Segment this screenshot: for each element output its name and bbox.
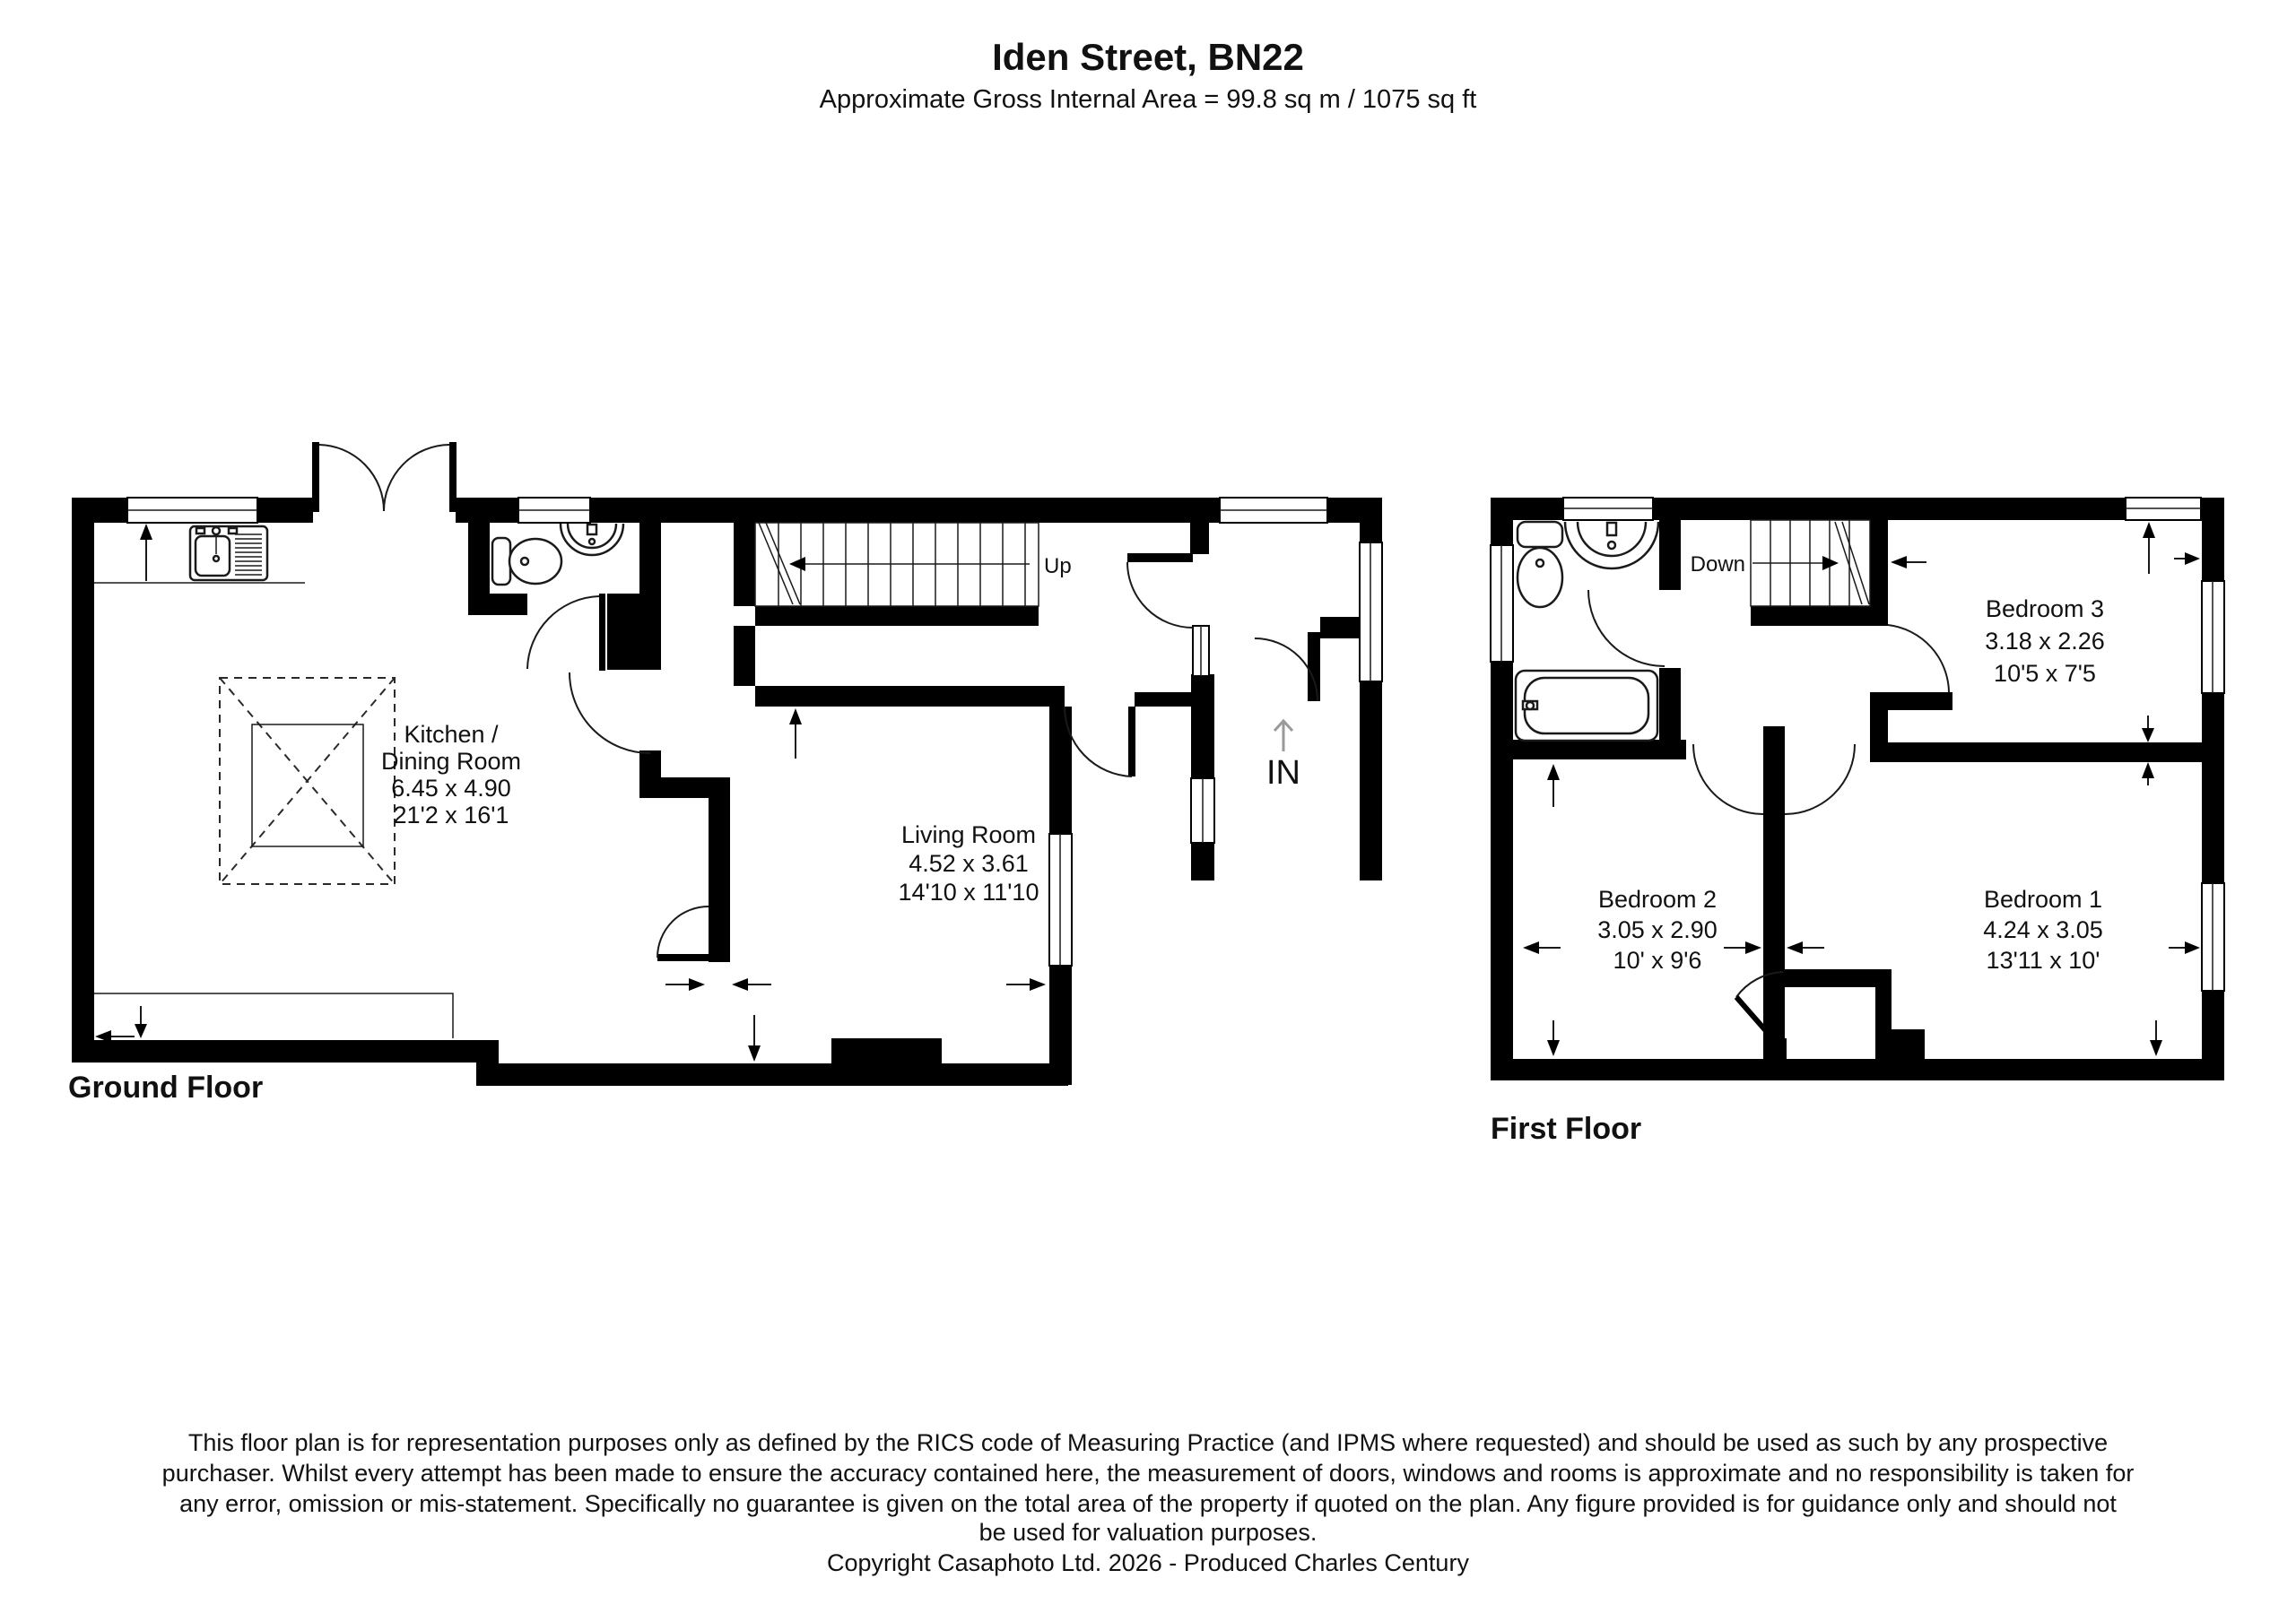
header: Iden Street, BN22 Approximate Gross Inte… (820, 36, 1477, 114)
entrance-marker: IN (1266, 721, 1300, 792)
stairs-up-label: Up (1044, 554, 1072, 578)
room-dims-imperial: 14'10 x 11'10 (899, 879, 1039, 906)
hall-vestibule-door-arc (1127, 562, 1193, 628)
copyright-line: Copyright Casaphoto Ltd. 2026 - Produced… (827, 1549, 1469, 1576)
tap-icon (213, 527, 220, 534)
stair-arrow-head (1822, 556, 1839, 570)
room-dims-imperial: 10' x 9'6 (1613, 947, 1702, 974)
measure-arrow-up (2143, 522, 2155, 574)
measure-arrow-left (1523, 941, 1561, 954)
measure-arrow-up (789, 708, 802, 759)
toilet-icon (1518, 548, 1562, 607)
kitchen-living-door-arc (657, 906, 709, 958)
hall-living-door-arc (1065, 707, 1132, 776)
window (1191, 778, 1214, 843)
measure-arrow-right (2169, 941, 2200, 954)
measure-arrow-up (2142, 762, 2154, 785)
room-dims-metric: 3.18 x 2.26 (1985, 628, 2105, 655)
tap-icon (1607, 523, 1616, 535)
measure-arrow-left (1787, 941, 1824, 954)
wc-fixtures (492, 524, 623, 585)
window (2126, 498, 2201, 520)
page-title: Iden Street, BN22 (992, 36, 1304, 78)
hall-living-door-leaf (1128, 707, 1135, 776)
double-door-right-leaf (449, 442, 457, 512)
window (1049, 834, 1072, 966)
tap-icon (587, 525, 596, 534)
ground-floor-plan: Up (68, 442, 1382, 1105)
disclaimer-line: purchaser. Whilst every attempt has been… (162, 1460, 2135, 1487)
entrance-arrow-icon (1274, 721, 1292, 751)
entrance-label: IN (1266, 754, 1300, 792)
measure-arrow-down (135, 1006, 147, 1038)
measure-arrow-right (665, 978, 705, 991)
window (127, 498, 257, 523)
measure-arrow-down (2142, 716, 2154, 742)
bedroom1-door-arc (1785, 744, 1855, 814)
bedroom1-label: Bedroom 1 4.24 x 3.05 13'11 x 10' (1983, 886, 2103, 974)
kitchen-dining-label: Kitchen / Dining Room 6.45 x 4.90 21'2 x… (381, 721, 521, 828)
toilet-icon (509, 539, 561, 584)
ground-floor-measure-arrows (95, 524, 1046, 1062)
kitchen-living-door-leaf (657, 954, 709, 961)
kitchen-step-line (94, 993, 453, 1038)
measure-arrow-up (140, 524, 152, 581)
window (1563, 498, 1653, 520)
wc-door-arc (527, 596, 599, 669)
window (1193, 626, 1209, 676)
room-dims-metric: 3.05 x 2.90 (1597, 916, 1718, 943)
double-door-right-arc (384, 445, 449, 511)
page-subtitle: Approximate Gross Internal Area = 99.8 s… (820, 85, 1477, 114)
first-floor-staircase: Down (1691, 520, 1870, 606)
room-name: Dining Room (381, 748, 521, 775)
kitchen-island-proposed (220, 678, 395, 884)
floorplan-page: Iden Street, BN22 Approximate Gross Inte… (0, 0, 2296, 1622)
disclaimer-line: This floor plan is for representation pu… (188, 1429, 2108, 1456)
floorplan-canvas: Iden Street, BN22 Approximate Gross Inte… (0, 0, 2296, 1622)
front-door-leaf (1308, 632, 1320, 701)
measure-arrow-down (748, 1015, 761, 1062)
kitchen-sink-unit (94, 526, 305, 583)
window (1360, 542, 1382, 681)
measure-arrow-right (1724, 941, 1761, 954)
room-dims-metric: 6.45 x 4.90 (391, 775, 511, 802)
double-door-left-leaf (312, 442, 319, 512)
bedroom3-label: Bedroom 3 3.18 x 2.26 10'5 x 7'5 (1985, 595, 2105, 687)
ground-floor-staircase: Up (755, 523, 1072, 606)
double-door-left-arc (319, 445, 384, 511)
bedroom2-door-arc (1693, 744, 1763, 814)
measure-arrow-left (732, 978, 771, 991)
bathroom-fixtures (1516, 522, 1658, 741)
window (518, 498, 590, 523)
measure-arrow-right (2174, 552, 2200, 565)
room-dims-imperial: 13'11 x 10' (1987, 947, 2100, 974)
stair-arrow-head (789, 557, 805, 571)
room-dims-imperial: 21'2 x 16'1 (394, 802, 509, 828)
measure-arrow-left (1891, 556, 1926, 568)
tap-icon (229, 528, 237, 533)
first-floor-walls (1491, 498, 2224, 1080)
window (2202, 581, 2224, 693)
room-dims-imperial: 10'5 x 7'5 (1994, 660, 2096, 687)
bathroom-door-arc (1588, 590, 1665, 666)
disclaimer-line: be used for valuation purposes. (979, 1519, 1318, 1546)
stairs-down-label: Down (1691, 552, 1745, 577)
disclaimer-line: any error, omission or mis-statement. Sp… (179, 1490, 2117, 1517)
measure-arrow-down (1547, 1020, 1560, 1056)
hall-vestibule-door-leaf (1127, 553, 1193, 562)
living-room-label: Living Room 4.52 x 3.61 14'10 x 11'10 (899, 821, 1039, 906)
toilet-cistern-icon (1518, 522, 1562, 547)
room-name: Living Room (901, 821, 1036, 848)
bedroom3-door-arc (1888, 625, 1949, 692)
measure-arrow-down (2150, 1020, 2162, 1056)
toilet-cistern-icon (492, 538, 510, 585)
room-name: Bedroom 3 (1986, 595, 2104, 622)
room-name: Bedroom 1 (1984, 886, 2102, 913)
room-name: Bedroom 2 (1598, 886, 1717, 913)
room-name: Kitchen / (404, 721, 499, 748)
first-floor-plan: Down (1491, 498, 2224, 1146)
tap-icon (196, 528, 204, 533)
footer: This floor plan is for representation pu… (162, 1429, 2135, 1576)
bedroom2-label: Bedroom 2 3.05 x 2.90 10' x 9'6 (1597, 886, 1718, 974)
window (2202, 883, 2224, 991)
measure-arrow-up (1547, 764, 1560, 807)
window (1491, 545, 1513, 662)
wc-door-leaf (599, 594, 605, 671)
room-dims-metric: 4.52 x 3.61 (909, 850, 1029, 877)
ground-floor-walls (72, 498, 1382, 1086)
measure-arrow-right (1006, 978, 1046, 991)
room-dims-metric: 4.24 x 3.05 (1983, 916, 2103, 943)
ground-floor-label: Ground Floor (68, 1071, 263, 1105)
first-floor-label: First Floor (1491, 1112, 1641, 1146)
window (1220, 498, 1327, 523)
kitchen-door-arc (570, 672, 650, 753)
